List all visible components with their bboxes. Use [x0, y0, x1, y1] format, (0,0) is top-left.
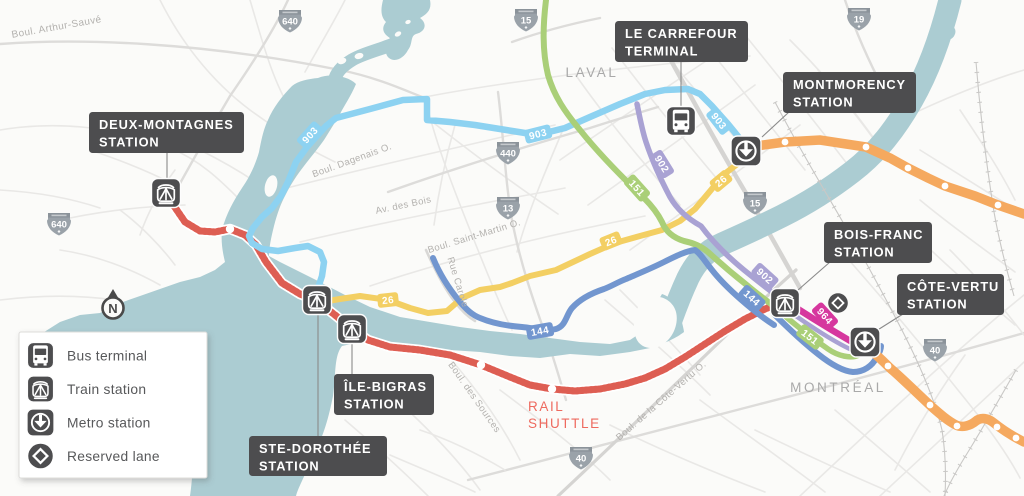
- svg-text:STATION: STATION: [344, 397, 405, 412]
- svg-text:SHUTTLE: SHUTTLE: [528, 416, 601, 431]
- svg-text:13: 13: [503, 204, 514, 215]
- svg-text:RAIL: RAIL: [528, 399, 564, 414]
- svg-text:15: 15: [521, 16, 532, 27]
- svg-text:MONTMORENCY: MONTMORENCY: [793, 77, 906, 92]
- svg-text:26: 26: [382, 295, 395, 307]
- svg-text:DEUX-MONTAGNES: DEUX-MONTAGNES: [99, 117, 234, 132]
- svg-text:440: 440: [500, 149, 516, 160]
- svg-text:CÔTE-VERTU: CÔTE-VERTU: [907, 279, 999, 294]
- svg-text:Bus terminal: Bus terminal: [67, 349, 147, 364]
- svg-text:TERMINAL: TERMINAL: [625, 44, 698, 59]
- svg-text:640: 640: [282, 17, 298, 28]
- svg-text:Metro station: Metro station: [67, 416, 151, 431]
- svg-text:BOIS-FRANC: BOIS-FRANC: [834, 227, 923, 242]
- svg-text:STE-DOROTHÉE: STE-DOROTHÉE: [259, 441, 371, 456]
- svg-text:Reserved lane: Reserved lane: [67, 449, 160, 464]
- svg-text:40: 40: [930, 346, 941, 357]
- svg-text:640: 640: [51, 220, 67, 231]
- svg-text:MONTRÉAL: MONTRÉAL: [790, 380, 886, 395]
- svg-text:STATION: STATION: [793, 95, 854, 110]
- svg-text:STATION: STATION: [907, 297, 968, 312]
- svg-text:LAVAL: LAVAL: [565, 65, 618, 80]
- svg-text:STATION: STATION: [259, 459, 320, 474]
- svg-text:Train station: Train station: [67, 382, 146, 397]
- svg-text:STATION: STATION: [99, 135, 160, 150]
- svg-text:STATION: STATION: [834, 245, 895, 260]
- svg-text:ÎLE-BIGRAS: ÎLE-BIGRAS: [343, 379, 427, 394]
- svg-text:N: N: [108, 301, 117, 316]
- svg-text:LE CARREFOUR: LE CARREFOUR: [625, 26, 737, 41]
- svg-text:15: 15: [750, 199, 761, 210]
- svg-text:19: 19: [854, 15, 865, 26]
- svg-text:40: 40: [576, 454, 587, 465]
